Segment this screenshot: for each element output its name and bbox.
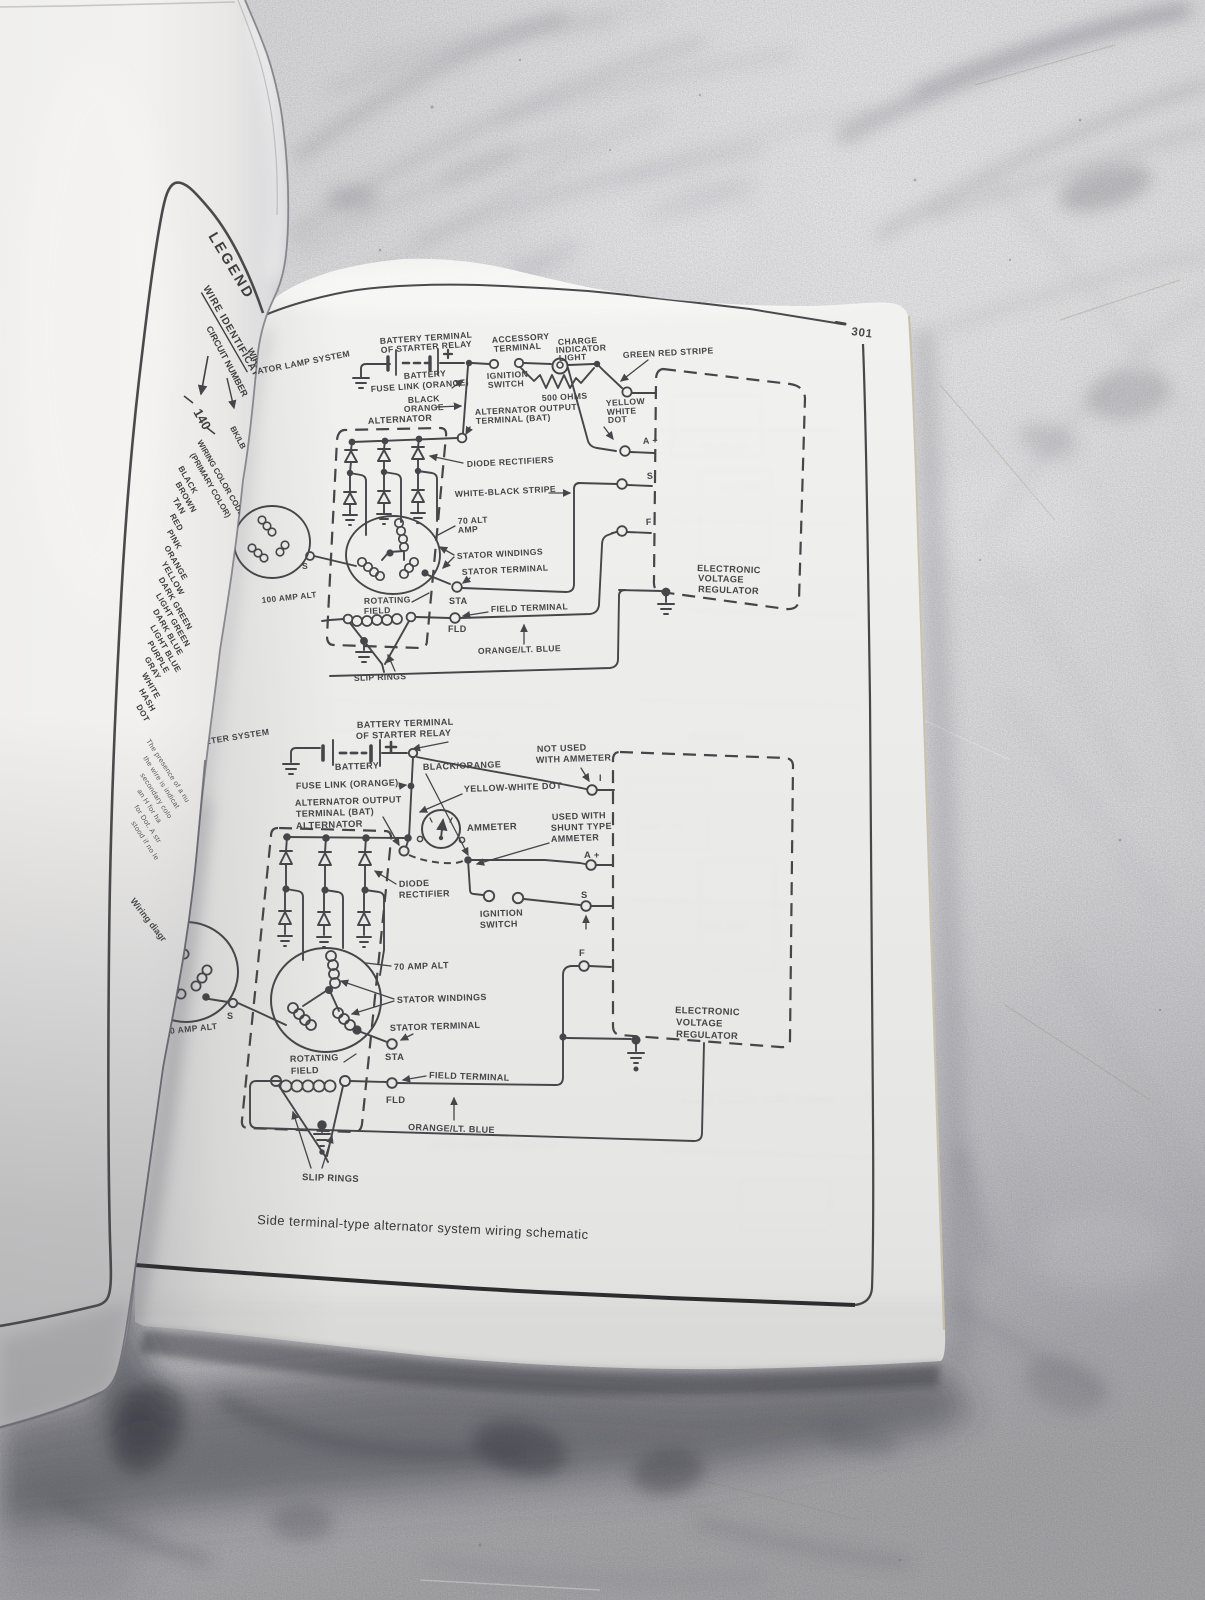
svg-text:AMMETER: AMMETER xyxy=(467,820,518,833)
svg-text:SLIP RINGS: SLIP RINGS xyxy=(354,671,407,683)
svg-text:ORANGE: ORANGE xyxy=(404,402,445,414)
svg-text:FIELD: FIELD xyxy=(291,1065,319,1076)
svg-text:STA: STA xyxy=(385,1051,404,1062)
svg-text:S: S xyxy=(581,889,588,900)
svg-text:DIODE: DIODE xyxy=(399,878,430,889)
svg-text:FLD: FLD xyxy=(386,1094,405,1105)
svg-text:OCJ RTE: OCJ RTE xyxy=(720,482,764,493)
svg-text:ELECTRONIC: ELECTRONIC xyxy=(675,1004,740,1017)
svg-text:70 AMP ALT: 70 AMP ALT xyxy=(394,960,449,972)
svg-text:BATTERY: BATTERY xyxy=(335,760,380,772)
svg-text:I: I xyxy=(599,773,602,783)
svg-text:VOLTAGE: VOLTAGE xyxy=(676,1016,723,1029)
svg-text:REGULATOR: REGULATOR xyxy=(676,1028,738,1041)
svg-text:F: F xyxy=(579,947,585,958)
svg-text:S: S xyxy=(647,471,654,481)
svg-text:S: S xyxy=(302,561,308,571)
svg-text:VOLTAGE: VOLTAGE xyxy=(698,573,744,585)
svg-text:FLD: FLD xyxy=(448,624,467,634)
svg-text:ROTOM OV: ROTOM OV xyxy=(690,732,745,743)
svg-text:IGNITION: IGNITION xyxy=(480,907,524,919)
svg-text:RECTIFIER: RECTIFIER xyxy=(399,888,451,900)
svg-text:SLIP RINGS: SLIP RINGS xyxy=(302,1171,359,1184)
svg-text:REGULATOR: REGULATOR xyxy=(698,584,759,596)
svg-text:MUY CAV: MUY CAV xyxy=(640,822,686,833)
svg-text:USED WITH: USED WITH xyxy=(552,810,606,822)
svg-text:NOT USED: NOT USED xyxy=(537,742,587,754)
svg-text:F: F xyxy=(646,517,653,527)
svg-text:DOR TUO: DOR TUO xyxy=(700,922,746,933)
svg-text:prinw meteve rotamenta: prinw meteve rotamenta xyxy=(430,1139,557,1151)
svg-text:SHUNT TYPE: SHUNT TYPE xyxy=(551,821,612,833)
svg-text:AMMETER: AMMETER xyxy=(551,832,600,844)
svg-text:A +: A + xyxy=(584,849,600,860)
svg-text:ROTATING: ROTATING xyxy=(290,1052,339,1064)
svg-text:SWITCH: SWITCH xyxy=(488,378,525,390)
svg-text:DOT: DOT xyxy=(608,414,628,425)
svg-text:LIGHT: LIGHT xyxy=(559,352,588,363)
svg-text:VA OT MO: VA OT MO xyxy=(700,442,749,453)
svg-text:AMP: AMP xyxy=(458,524,479,535)
svg-text:S: S xyxy=(227,1011,233,1021)
svg-text:SWITCH: SWITCH xyxy=(480,919,518,930)
svg-text:STA: STA xyxy=(449,596,468,606)
